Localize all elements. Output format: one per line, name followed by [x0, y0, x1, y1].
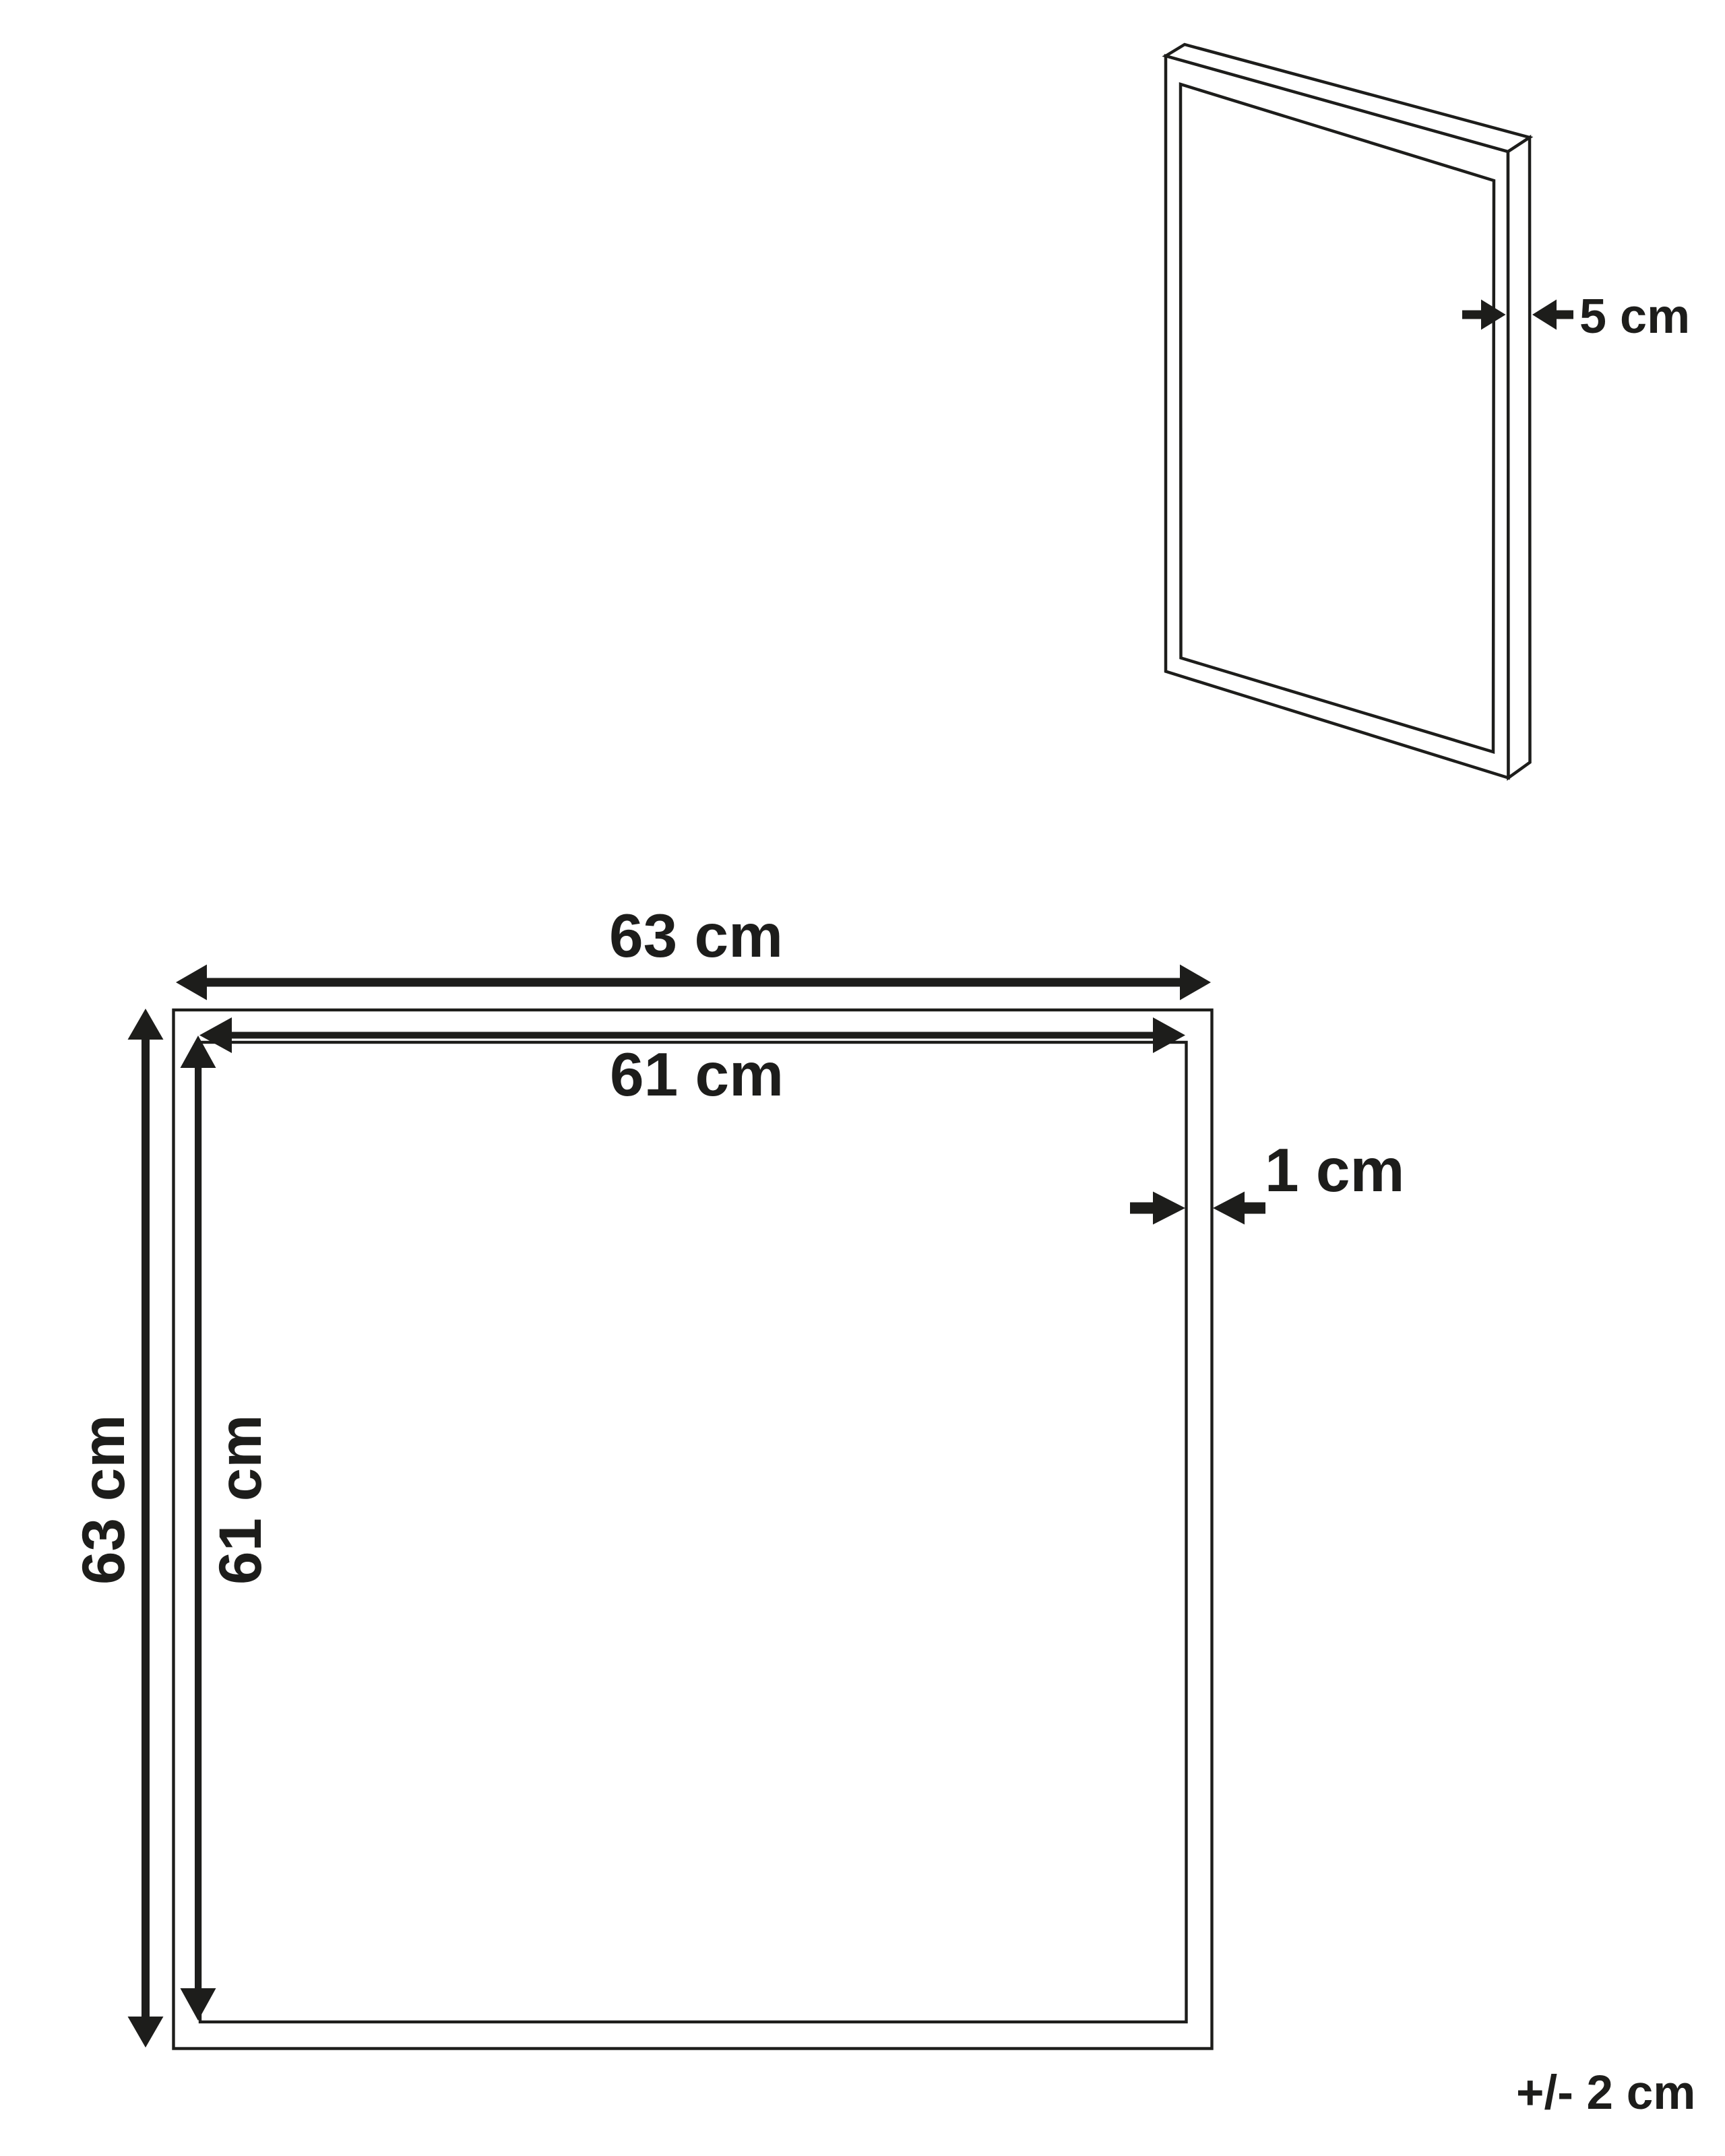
svg-text:61 cm: 61 cm	[206, 1415, 274, 1585]
svg-text:+/- 2 cm: +/- 2 cm	[1516, 2066, 1695, 2120]
svg-text:63 cm: 63 cm	[69, 1415, 137, 1585]
svg-text:61 cm: 61 cm	[610, 1041, 784, 1109]
svg-text:63 cm: 63 cm	[609, 902, 783, 970]
svg-text:5 cm: 5 cm	[1579, 290, 1690, 344]
svg-text:1 cm: 1 cm	[1265, 1137, 1404, 1205]
